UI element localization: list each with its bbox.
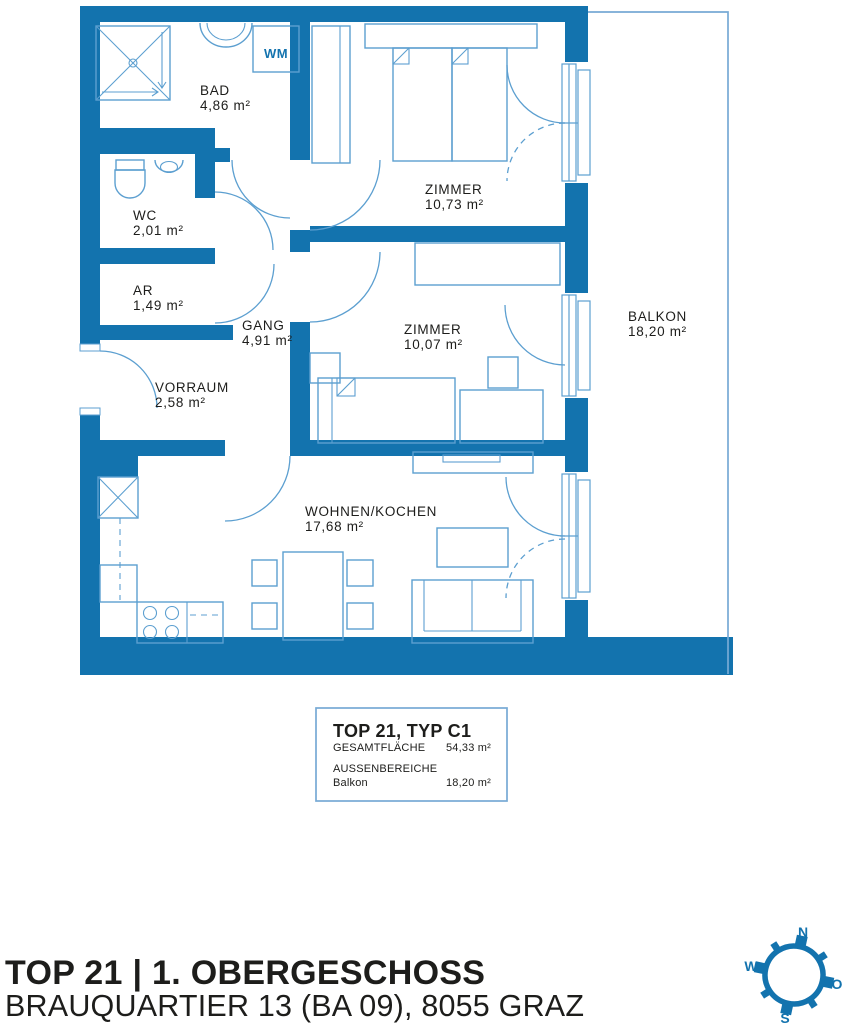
room-label-wohnen: WOHNEN/KOCHEN — [305, 504, 437, 519]
footer-subtitle: BRAUQUARTIER 13 (BA 09), 8055 GRAZ — [5, 989, 584, 1023]
entrance-jamb-top — [80, 344, 100, 351]
room-area-ar: 1,49 m² — [133, 298, 184, 313]
wohnen-balcony-door-arc-dashed — [506, 539, 565, 598]
legend-total-label: GESAMTFLÄCHE — [333, 742, 425, 754]
legend-outdoor-label: AUSSENBEREICHE — [333, 763, 437, 775]
wm-label: WM — [264, 46, 288, 61]
toilet-icon — [115, 160, 145, 198]
room-area-wc: 2,01 m² — [133, 223, 184, 238]
floorplan-canvas: WM — [0, 0, 842, 1024]
room-label-vorraum: VORRAUM — [155, 380, 229, 395]
dining-chairs-icon — [252, 560, 373, 629]
single-bed-icon — [318, 378, 455, 443]
desk-icon — [415, 243, 560, 285]
room-label-balkon: BALKON — [628, 309, 687, 324]
kitchen-cabinet-icon — [100, 565, 137, 602]
washbasin-icon — [200, 23, 252, 47]
shower-icon — [96, 26, 170, 100]
wohnen-balcony-door-arc — [506, 477, 565, 536]
wohnen-door-arc — [225, 456, 290, 521]
double-bed-icon — [365, 24, 537, 161]
coffee-table-icon — [437, 528, 508, 567]
room-label-zimmer2: ZIMMER — [404, 322, 461, 337]
compass-n: N — [798, 924, 808, 940]
legend-outdoor-item: Balkon — [333, 777, 368, 789]
zimmer1-door-arc — [310, 160, 380, 230]
legend-total-value: 54,33 m² — [446, 742, 491, 754]
room-label-wc: WC — [133, 208, 157, 223]
legend-title: TOP 21, TYP C1 — [333, 721, 471, 741]
sofa-icon — [412, 580, 533, 643]
room-area-vorraum: 2,58 m² — [155, 395, 206, 410]
kitchen-counter-icon — [137, 602, 223, 643]
desk-chair-icon — [488, 357, 518, 388]
zimmer1-balcony-door-arc-dashed — [507, 123, 565, 181]
entrance-jamb-bottom — [80, 408, 100, 415]
room-area-gang: 4,91 m² — [242, 333, 293, 348]
fridge-icon — [98, 477, 138, 518]
balcony-outline — [588, 12, 728, 674]
wc-basin-icon — [155, 160, 183, 173]
room-area-zimmer2: 10,07 m² — [404, 337, 463, 352]
room-label-bad: BAD — [200, 83, 230, 98]
zimmer1-balcony-door-arc — [507, 65, 565, 123]
legend-outdoor-value: 18,20 m² — [446, 777, 491, 789]
legend-box: TOP 21, TYP C1 GESAMTFLÄCHE 54,33 m² AUS… — [316, 708, 507, 801]
stove-icon — [144, 607, 179, 639]
window-zimmer2 — [560, 293, 590, 398]
room-label-ar: AR — [133, 283, 153, 298]
dining-table-icon — [283, 552, 343, 640]
room-label-gang: GANG — [242, 318, 285, 333]
entrance-door-arc — [100, 351, 157, 408]
zimmer2-window-arc — [505, 305, 565, 365]
footer-title: TOP 21 | 1. OBERGESCHOSS — [5, 954, 485, 992]
bad-door-arc — [232, 160, 290, 218]
wardrobe-icon — [312, 26, 350, 163]
zimmer2-door-arc — [310, 252, 380, 322]
compass-w: W — [744, 958, 758, 974]
compass-s: S — [780, 1010, 789, 1024]
wc-door-arc — [215, 192, 273, 250]
compass-rose: N W O S — [744, 924, 842, 1024]
compass-o: O — [832, 976, 842, 992]
ar-door-arc — [215, 264, 274, 323]
room-area-wohnen: 17,68 m² — [305, 519, 364, 534]
room-area-bad: 4,86 m² — [200, 98, 251, 113]
room-label-zimmer1: ZIMMER — [425, 182, 482, 197]
room-area-zimmer1: 10,73 m² — [425, 197, 484, 212]
dresser-icon — [460, 390, 543, 443]
room-area-balkon: 18,20 m² — [628, 324, 687, 339]
